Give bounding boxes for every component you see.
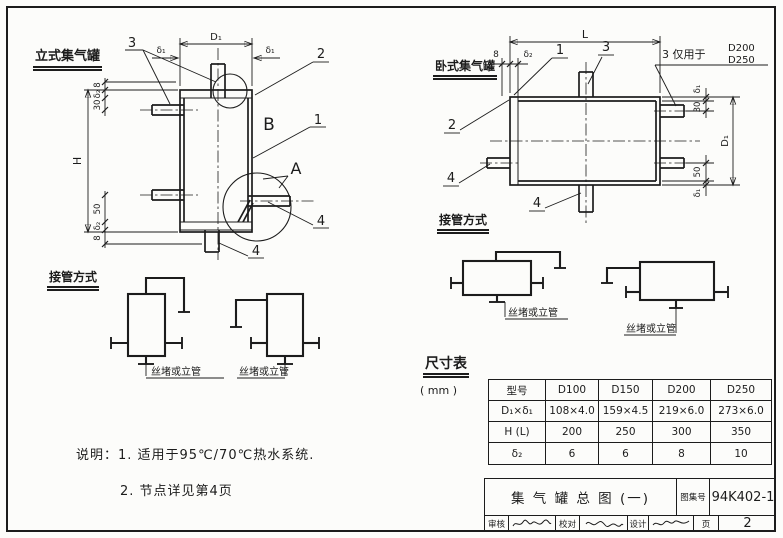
dim-30: 30 [693,102,703,113]
right-pipe-connection-schematics: 丝堵或立管 丝堵或立管 [451,252,728,335]
vertical-tank-view: D₁ δ₁ δ₁ 3 2 B 1 A 4 4 H 8 δ₂ 30 50 δ₂ 8 [71,32,329,260]
dim-top-8: 8 [93,82,103,87]
callout-4b: 4 [533,196,541,211]
dim-bot-delta2: δ₂ [93,222,103,231]
page-label: 页 [694,516,719,531]
callout-1: 1 [556,43,564,58]
callout-2: 2 [448,118,456,133]
dimension-lines [84,38,329,258]
centerlines [480,62,700,224]
note-line-2: 2. 节点详见第4页 [120,480,233,499]
table-cell: 108×4.0 [546,401,599,422]
table-header-d150: D150 [599,380,653,401]
dim-50: 50 [693,167,703,178]
centerlines [140,48,314,260]
table-row-label: D₁×δ₁ [489,401,546,422]
design-label: 设计 [628,516,649,531]
table-header-d200: D200 [653,380,711,401]
left-pipe-connection-schematics: 丝堵或立管 丝堵或立管 [111,278,319,378]
callout-3: 3 [602,40,610,55]
dim-h-label: H [71,157,84,165]
note-d250: D250 [728,55,755,66]
right-pipe-connection-heading: 接管方式 [437,214,489,234]
table-cell: 6 [546,443,599,464]
reviewer-signature [509,516,556,531]
table-cell: 250 [599,422,653,443]
check-label: 校对 [556,516,580,531]
dim-delta2-label: δ₂ [523,50,533,60]
size-table-heading: 尺寸表 [423,356,469,378]
dim-l-label: L [582,28,589,41]
dim-bot-8: 8 [93,235,103,240]
drawing-title: 集 气 罐 总 图 (一) [485,479,677,515]
title-block: 集 气 罐 总 图 (一) 图集号 94K402-1 审核 校对 设计 页 2 [484,478,776,531]
table-cell: 159×4.5 [599,401,653,422]
dimension-table: 型号 D100 D150 D200 D250 D₁×δ₁ 108×4.0 159… [488,379,772,465]
dim-top-delta2: δ₂ [93,90,103,99]
dim-bot-50: 50 [93,204,103,215]
note-d200: D200 [728,43,755,54]
callout-4a: 4 [447,171,455,186]
connection-label-2: 丝堵或立管 [239,365,289,378]
table-cell: 273×6.0 [711,401,771,422]
dim-delta1-top: δ₁ [693,85,703,94]
table-cell: 350 [711,422,771,443]
table-cell: 8 [653,443,711,464]
atlas-number-label: 图集号 [677,479,710,515]
connection-label-1: 丝堵或立管 [508,306,558,319]
review-label: 审核 [485,516,509,531]
table-row-label: H (L) [489,422,546,443]
callout-3: 3 [128,36,136,51]
drawing-sheet: D₁ δ₁ δ₁ 3 2 B 1 A 4 4 H 8 δ₂ 30 50 δ₂ 8 [0,0,783,538]
page-number: 2 [719,516,776,531]
note-only-for: 3 仅用于 [662,48,706,61]
table-cell: 10 [711,443,771,464]
table-cell: 200 [546,422,599,443]
horizontal-tank-heading: 卧式集气罐 [433,60,497,80]
atlas-number: 94K402-1 [710,479,776,515]
callout-4a: 4 [317,214,325,229]
dim-delta1-bot: δ₁ [693,189,703,198]
designer-signature [649,516,694,531]
size-table-unit: ( mm ) [420,384,457,397]
dim-delta1-left-label: δ₁ [156,46,166,56]
note-line-1: 说明：1. 适用于95℃/70℃热水系统. [76,444,314,463]
callout-4b: 4 [252,244,260,259]
dim-d1-label: D₁ [720,135,731,147]
vertical-tank-heading: 立式集气罐 [33,50,102,71]
table-header-d250: D250 [711,380,771,401]
table-cell: 219×6.0 [653,401,711,422]
table-header-d100: D100 [546,380,599,401]
detail-b-label: B [263,115,275,135]
table-cell: 6 [599,443,653,464]
table-cell: 300 [653,422,711,443]
callout-1: 1 [314,113,322,128]
left-pipe-connection-heading: 接管方式 [47,271,99,291]
dim-top-30: 30 [93,100,103,111]
detail-circle-a [223,173,291,241]
detail-a-label: A [291,159,302,178]
dim-d1-label: D₁ [210,32,222,43]
horizontal-tank-view: L 8 δ₂ 1 3 3 仅用于 D200 D250 2 4 4 δ₁ 30 5… [443,28,768,224]
callout-2: 2 [317,47,325,62]
table-row-label: δ₂ [489,443,546,464]
connection-label-2: 丝堵或立管 [626,322,676,335]
connection-label-1: 丝堵或立管 [151,365,201,378]
table-header-model: 型号 [489,380,546,401]
checker-signature [580,516,628,531]
dim-delta1-right-label: δ₁ [265,46,275,56]
